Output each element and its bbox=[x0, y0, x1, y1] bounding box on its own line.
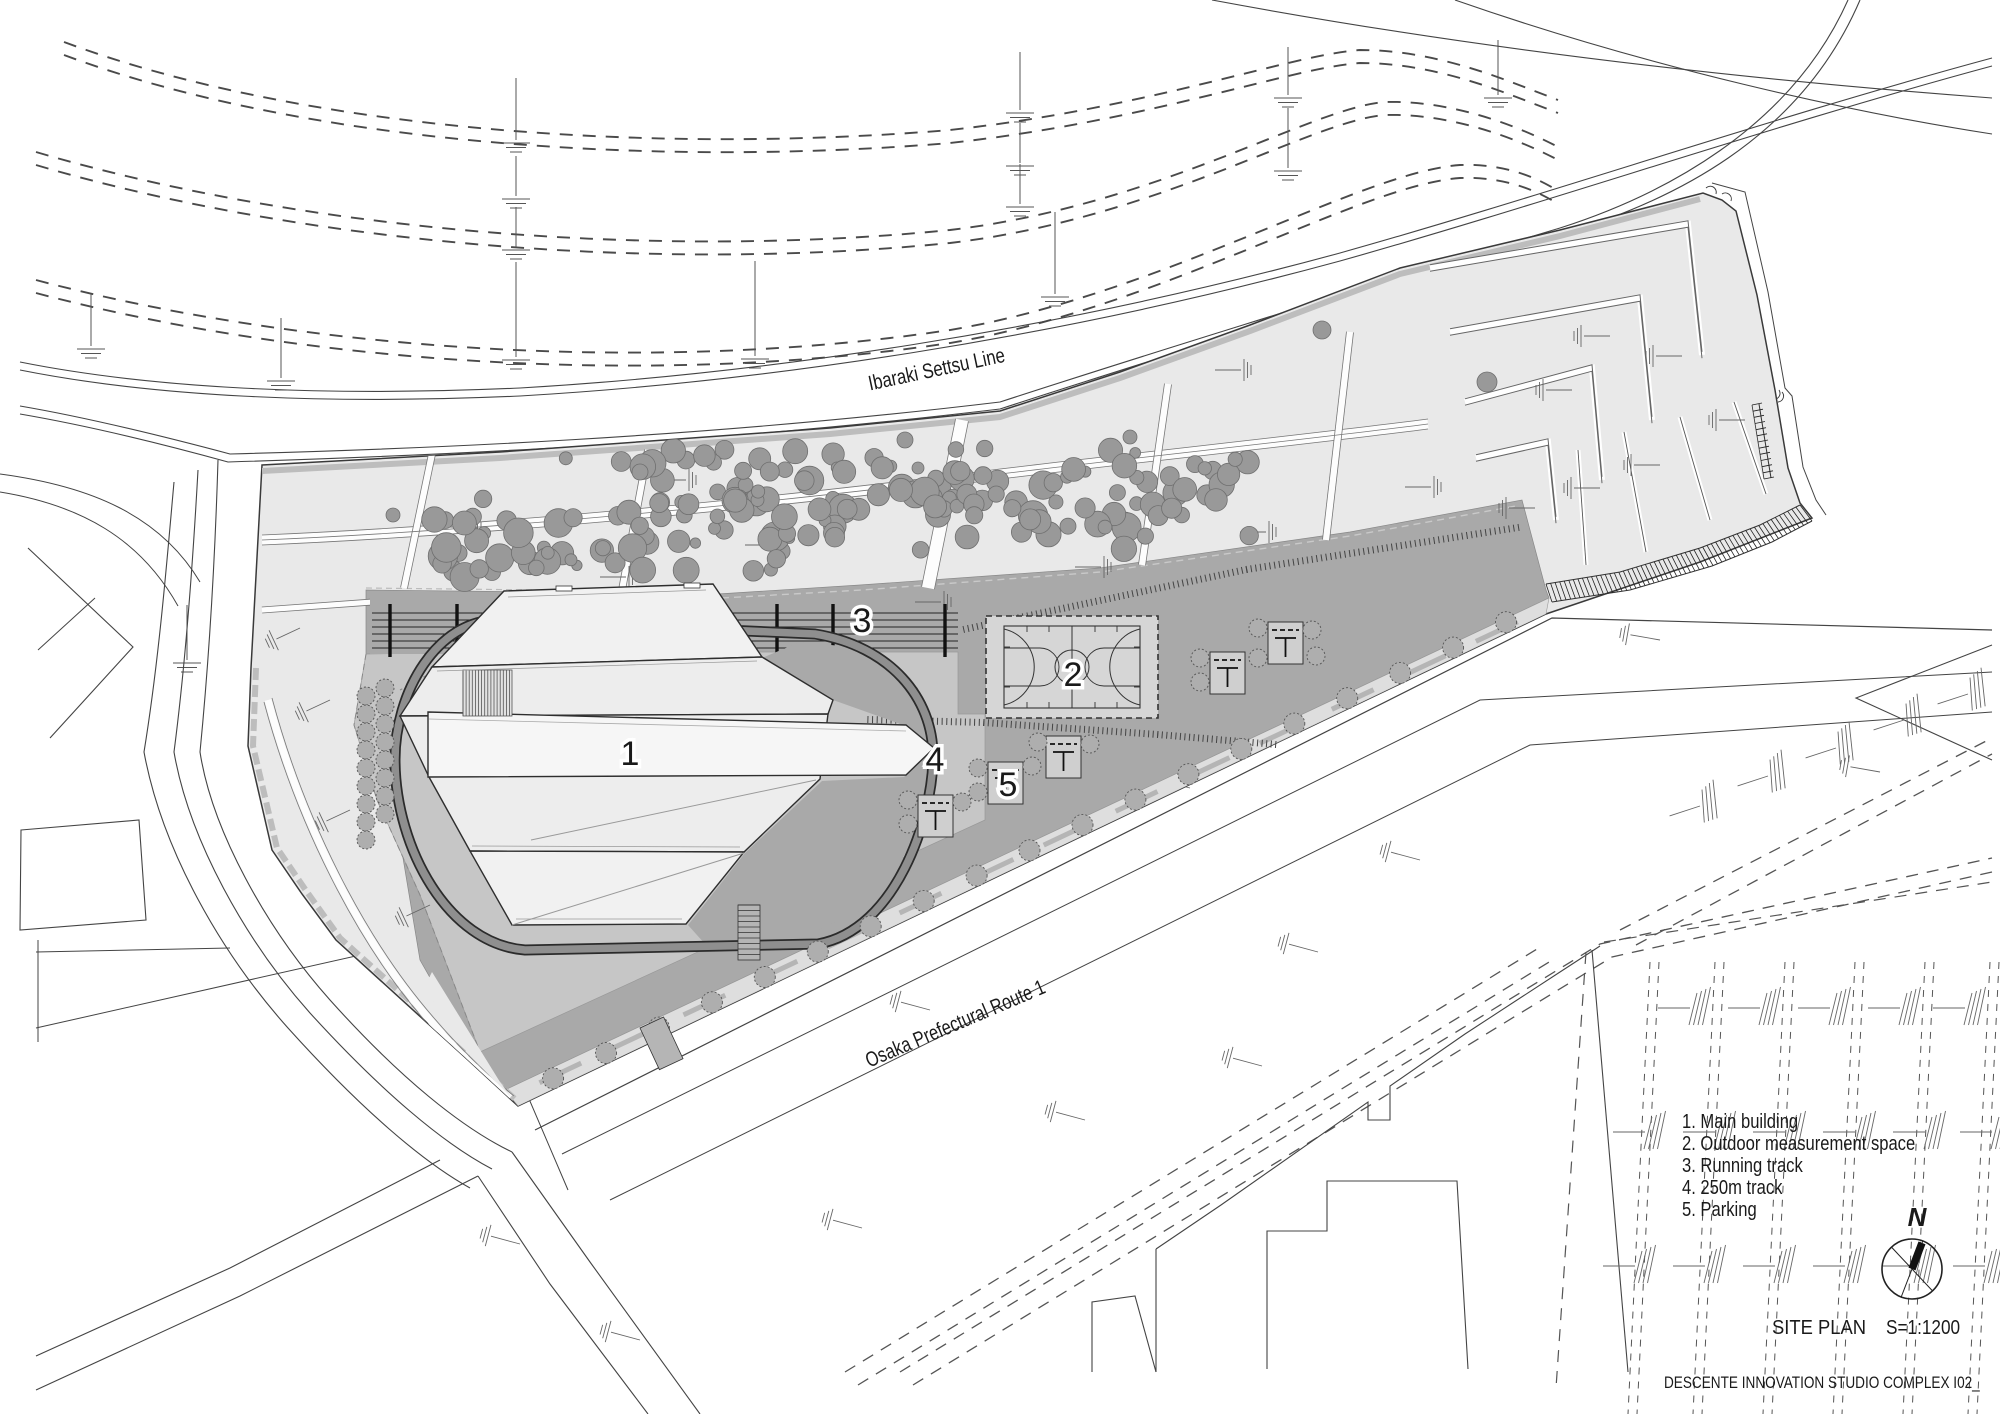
svg-text:3: 3 bbox=[853, 602, 872, 640]
svg-text:SITE PLAN: SITE PLAN bbox=[1772, 1317, 1866, 1339]
svg-text:3. Running track: 3. Running track bbox=[1682, 1154, 1803, 1177]
svg-text:2. Outdoor measurement space: 2. Outdoor measurement space bbox=[1682, 1132, 1915, 1155]
svg-text:5. Parking: 5. Parking bbox=[1682, 1198, 1757, 1221]
svg-text:1. Main building: 1. Main building bbox=[1682, 1110, 1798, 1133]
svg-text:1: 1 bbox=[621, 735, 640, 773]
svg-text:2: 2 bbox=[1064, 656, 1083, 694]
svg-text:5: 5 bbox=[999, 766, 1018, 804]
svg-text:S=1:1200: S=1:1200 bbox=[1886, 1316, 1960, 1339]
svg-text:4. 250m track: 4. 250m track bbox=[1682, 1176, 1783, 1199]
svg-text:N: N bbox=[1908, 1202, 1928, 1232]
svg-text:DESCENTE INNOVATION STUDIO COM: DESCENTE INNOVATION STUDIO COMPLEX I02_ bbox=[1664, 1374, 1980, 1393]
svg-text:4: 4 bbox=[926, 741, 945, 779]
